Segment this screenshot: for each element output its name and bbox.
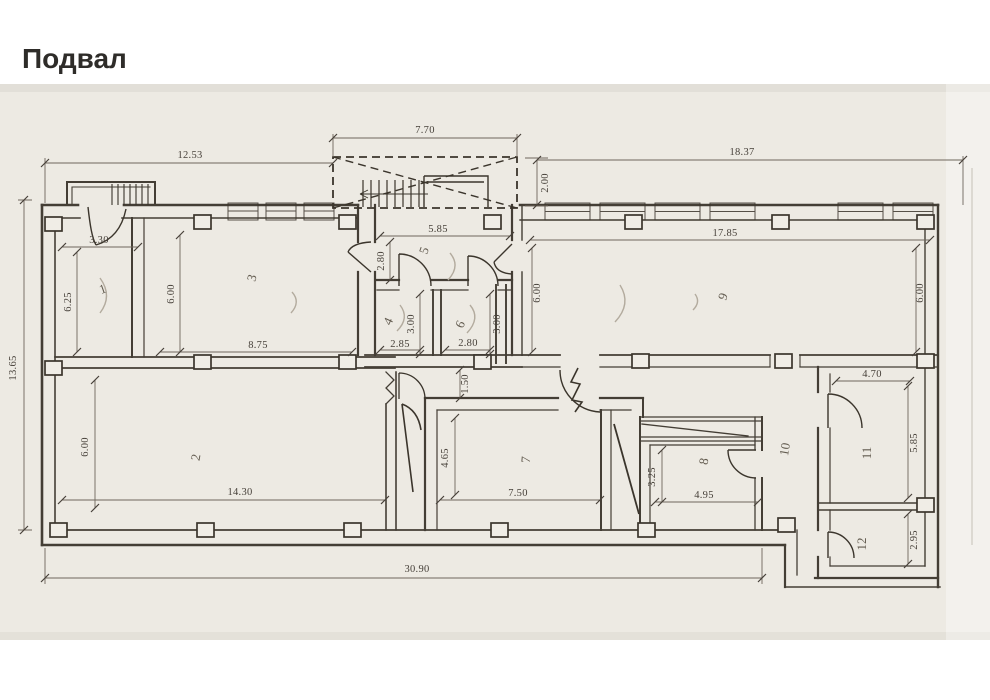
dim-room9-height-left: 6.00 — [532, 283, 543, 303]
dim-top-right: 18.37 — [729, 147, 754, 158]
dim-corridor-width: 1.50 — [460, 374, 471, 394]
column — [772, 215, 789, 229]
dim-room4-width: 2.85 — [390, 339, 410, 350]
column — [50, 523, 67, 537]
dim-room3-height: 6.00 — [166, 284, 177, 304]
dim-room8-width: 4.95 — [694, 490, 714, 501]
column — [45, 217, 62, 231]
scan-paper — [0, 84, 990, 640]
dim-room5-height: 2.80 — [376, 251, 387, 271]
column — [339, 355, 356, 369]
column — [778, 518, 795, 532]
dim-room8-height: 3.25 — [647, 467, 658, 487]
column — [194, 215, 211, 229]
dim-room11-height: 5.85 — [909, 433, 920, 453]
dim-room1-width: 3.30 — [89, 235, 109, 246]
dim-room12-height: 2.95 — [909, 530, 920, 550]
column — [194, 355, 211, 369]
paper-top-shade — [0, 84, 990, 92]
dim-room1-height: 6.25 — [63, 292, 74, 312]
paper-right-light — [946, 84, 990, 640]
dim-room6-height: 3.00 — [492, 314, 503, 334]
dim-room6-width: 2.80 — [458, 338, 478, 349]
column — [344, 523, 361, 537]
column — [474, 355, 491, 369]
dim-top-left: 12.53 — [177, 150, 202, 161]
room-label-10: 10 — [776, 442, 793, 457]
column — [917, 354, 934, 368]
column — [917, 215, 934, 229]
column — [638, 523, 655, 537]
dim-room7-width: 7.50 — [508, 488, 528, 499]
dim-left-height: 13.65 — [8, 355, 19, 380]
column — [45, 361, 62, 375]
dim-room2-width: 14.30 — [227, 487, 252, 498]
dim-room11-width: 4.70 — [862, 369, 882, 380]
dim-room9-height-right: 6.00 — [915, 283, 926, 303]
column — [775, 354, 792, 368]
dim-stairwell-width: 7.70 — [415, 125, 435, 136]
column — [197, 523, 214, 537]
screenshot-root: Подвал — [0, 0, 990, 700]
dim-room3-width: 8.75 — [248, 340, 268, 351]
column — [491, 523, 508, 537]
column — [484, 215, 501, 229]
page-title: Подвал — [22, 43, 127, 74]
column — [625, 215, 642, 229]
dim-room2-height: 6.00 — [80, 437, 91, 457]
column — [632, 354, 649, 368]
column — [339, 215, 356, 229]
paper-bottom-shade — [0, 632, 990, 640]
dim-room7-height: 4.65 — [440, 448, 451, 468]
dim-room9-width: 17.85 — [712, 228, 737, 239]
floor-plan-drawing: Подвал — [0, 0, 990, 700]
dim-room5-width: 5.85 — [428, 224, 448, 235]
room-label-11: 11 — [859, 447, 874, 460]
dim-stairwell-depth: 2.00 — [540, 173, 551, 193]
dim-room4-height: 3.00 — [406, 314, 417, 334]
room-label-12: 12 — [854, 538, 869, 551]
column — [917, 498, 934, 512]
dim-bottom-width: 30.90 — [404, 564, 429, 575]
